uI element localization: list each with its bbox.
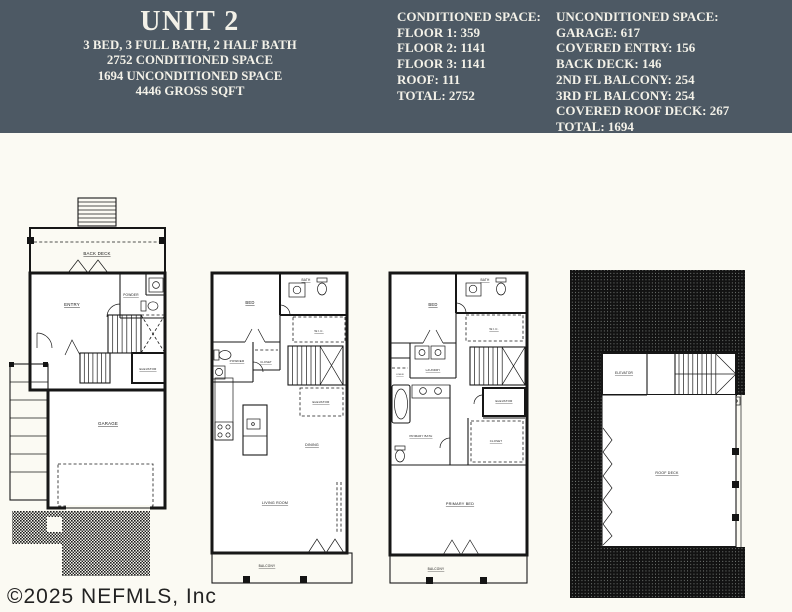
subtitle-line: 2752 CONDITIONED SPACE <box>55 53 325 68</box>
powder-label: POWDER <box>123 293 139 297</box>
floor3-plan: BATH BED W.I.C. LAUNDRY LINEN ELEVATOR <box>388 268 534 598</box>
conditioned-line: FLOOR 2: 1141 <box>397 40 541 56</box>
wic-label: W.I.C. <box>489 327 498 331</box>
bed-label: BED <box>245 300 254 305</box>
garage-label: GARAGE <box>98 421 118 426</box>
balcony-outline <box>390 555 527 583</box>
closet-label: CLOSET <box>260 360 272 364</box>
primary-bed-label: PRIMARY BED <box>446 502 474 506</box>
laundry-label: LAUNDRY <box>426 368 441 372</box>
unit-title: UNIT 2 <box>55 6 325 38</box>
bath-label: BATH <box>301 278 311 282</box>
elevator-label: ELEVATOR <box>615 371 634 375</box>
conditioned-line: FLOOR 3: 1141 <box>397 56 541 72</box>
elevator-label: ELEVATOR <box>495 399 513 403</box>
header-band: UNIT 2 3 BED, 3 FULL BATH, 2 HALF BATH 2… <box>0 0 792 133</box>
unconditioned-heading: UNCONDITIONED SPACE: <box>556 9 729 25</box>
balcony-outline <box>212 553 352 583</box>
roof-hatch <box>570 270 745 353</box>
elevator-label: ELEVATOR <box>139 367 157 371</box>
linen-label: LINEN <box>396 374 404 376</box>
conditioned-line: ROOF: 111 <box>397 72 541 88</box>
bath-label: BATH <box>480 278 490 282</box>
unconditioned-line: 3RD FL BALCONY: 254 <box>556 88 729 104</box>
subtitle-line: 4446 GROSS SQFT <box>55 84 325 99</box>
floor2-plan: BATH BED W.I.C. POWDER CLOSET ELEVATOR <box>205 270 355 595</box>
conditioned-line: TOTAL: 2752 <box>397 88 541 104</box>
roof-plan: ELEVATOR ROOF DECK <box>565 268 750 603</box>
primary-bath-label: PRIMARY BATH <box>409 434 432 438</box>
bed-label: BED <box>428 302 437 307</box>
subtitle-line: 3 BED, 3 FULL BATH, 2 HALF BATH <box>55 38 325 53</box>
unconditioned-line: COVERED ENTRY: 156 <box>556 40 729 56</box>
unconditioned-space-list: UNCONDITIONED SPACE: GARAGE: 617 COVERED… <box>556 9 729 135</box>
unconditioned-line: TOTAL: 1694 <box>556 119 729 135</box>
unconditioned-line: GARAGE: 617 <box>556 25 729 41</box>
living-room-label: LIVING ROOM <box>262 501 288 505</box>
floor1-plan: BACK DECK POWDER ENTRY ELEVATOR GARAGE <box>8 196 188 580</box>
balcony-label: BALCONY <box>259 564 276 568</box>
conditioned-line: FLOOR 1: 359 <box>397 25 541 41</box>
roof-deck-label: ROOF DECK <box>655 471 679 475</box>
title-block: UNIT 2 3 BED, 3 FULL BATH, 2 HALF BATH 2… <box>55 6 325 100</box>
conditioned-heading: CONDITIONED SPACE: <box>397 9 541 25</box>
unit-subtitle: 3 BED, 3 FULL BATH, 2 HALF BATH 2752 CON… <box>55 38 325 100</box>
garage-outline <box>48 390 165 508</box>
balcony-label: BALCONY <box>428 567 445 571</box>
wic-label: W.I.C. <box>314 329 323 333</box>
entry-label: ENTRY <box>64 302 80 307</box>
watermark: ©2025 NEFMLS, Inc <box>7 585 217 609</box>
powder-label: POWDER <box>230 359 245 363</box>
back-deck-label: BACK DECK <box>83 251 110 256</box>
floorplan-sheet: UNIT 2 3 BED, 3 FULL BATH, 2 HALF BATH 2… <box>0 0 792 612</box>
unconditioned-line: COVERED ROOF DECK: 267 <box>556 103 729 119</box>
subtitle-line: 1694 UNCONDITIONED SPACE <box>55 69 325 84</box>
primary-closet-label: CLOSET <box>490 439 502 443</box>
unconditioned-line: 2ND FL BALCONY: 254 <box>556 72 729 88</box>
driveway-hatch <box>12 511 150 576</box>
dining-label: DINING <box>305 443 319 447</box>
conditioned-space-list: CONDITIONED SPACE: FLOOR 1: 359 FLOOR 2:… <box>397 9 541 103</box>
elevator-label: ELEVATOR <box>312 400 330 404</box>
unconditioned-line: BACK DECK: 146 <box>556 56 729 72</box>
